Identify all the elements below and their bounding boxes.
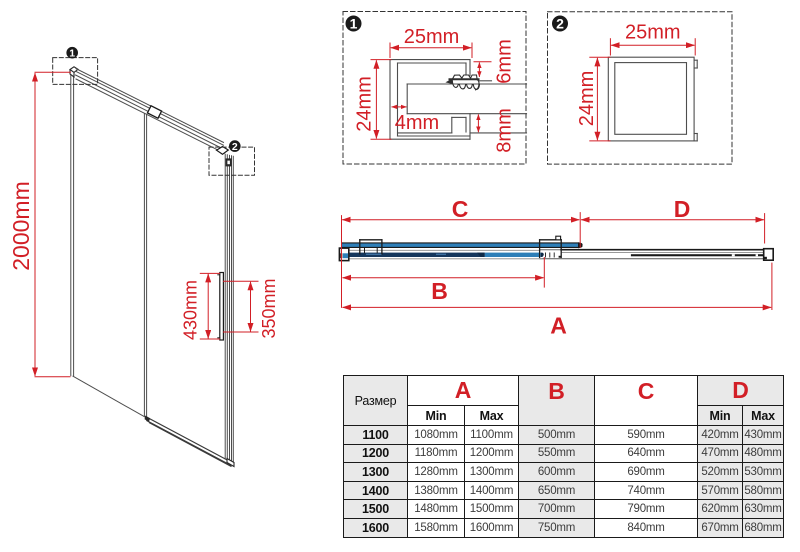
svg-text:24mm: 24mm	[354, 76, 376, 132]
svg-text:4mm: 4mm	[395, 112, 439, 134]
svg-text:2: 2	[232, 141, 238, 153]
svg-text:430mm: 430mm	[181, 280, 201, 340]
svg-text:A: A	[550, 313, 567, 339]
svg-text:D: D	[674, 196, 691, 222]
svg-text:2000mm: 2000mm	[8, 181, 34, 270]
svg-text:6mm: 6mm	[494, 39, 516, 83]
svg-text:1: 1	[350, 16, 358, 32]
svg-text:25mm: 25mm	[404, 26, 460, 48]
svg-text:8mm: 8mm	[494, 108, 516, 152]
svg-text:24mm: 24mm	[576, 71, 598, 127]
svg-text:C: C	[452, 196, 469, 222]
svg-text:B: B	[431, 278, 448, 304]
svg-text:25mm: 25mm	[625, 22, 681, 44]
svg-text:1: 1	[69, 48, 75, 60]
svg-text:2: 2	[556, 16, 564, 32]
svg-text:350mm: 350mm	[259, 278, 279, 338]
